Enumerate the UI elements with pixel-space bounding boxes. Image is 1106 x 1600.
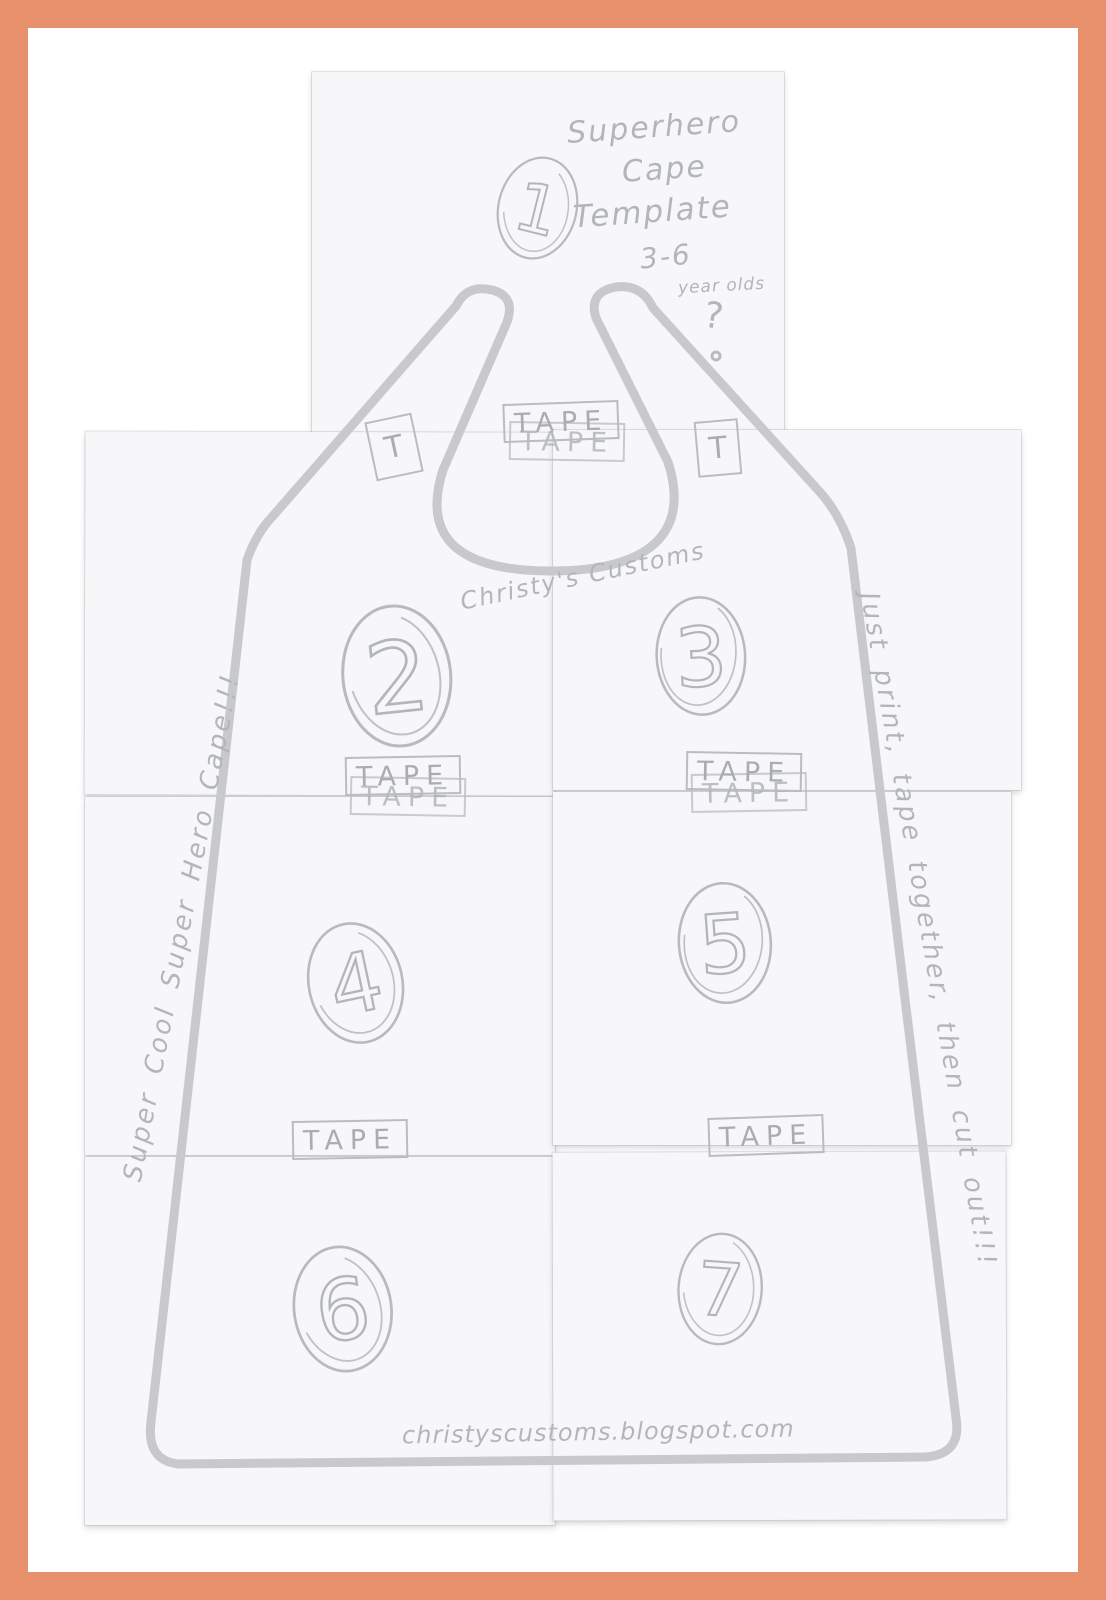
tape-label: TAPE: [292, 1119, 409, 1160]
sheet-7: [553, 1151, 1007, 1520]
sheet-number-text: 7: [694, 1247, 747, 1335]
sheet-number-2: 2: [328, 590, 466, 766]
sheet-number-3: 3: [646, 577, 756, 738]
sheet-number-text: 5: [696, 896, 754, 994]
scanned-template-page: Superhero Cape Template 3-6 year olds ? …: [0, 0, 1106, 1600]
sheet-number-text: 1: [507, 166, 568, 253]
tape-label: TAPE: [686, 751, 803, 792]
sheet-number-7: 7: [667, 1217, 773, 1365]
age-range: 3-6: [638, 237, 693, 275]
tape-label: TAPE: [502, 400, 620, 443]
sheet-number-text: 3: [673, 609, 730, 707]
title-line-2: Cape: [621, 149, 708, 190]
sheet-number-6: 6: [279, 1233, 408, 1389]
sheet-number-5: 5: [668, 869, 782, 1022]
tape-label: TAPE: [345, 755, 462, 796]
tape-label: TAPE: [707, 1114, 825, 1157]
tape-mark-right-t: T: [694, 418, 743, 478]
sheet-number-text: 2: [360, 619, 434, 739]
sheet-3: [553, 430, 1021, 790]
sheet-2: [85, 431, 556, 795]
